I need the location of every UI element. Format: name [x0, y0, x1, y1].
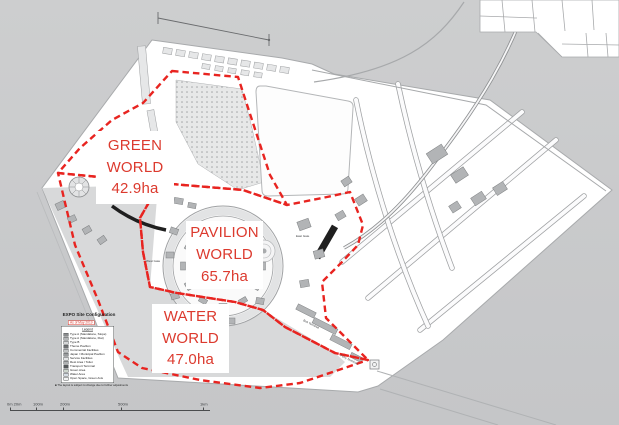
legend-item-label: Type A (Standalone, Slope): [70, 333, 106, 336]
legend-item-label: Green Area: [70, 369, 85, 372]
zone-name: WORLD: [186, 244, 263, 266]
scale-tick: [203, 408, 204, 412]
zone-label-water: WATER WORLD 47.0ha: [152, 304, 229, 373]
legend-swatch: [64, 337, 69, 341]
east-gate-label: East Gate: [296, 234, 310, 238]
legend-item-label: Commercial Facilities: [70, 349, 99, 352]
zone-area: 47.0ha: [152, 349, 229, 371]
building: [188, 202, 197, 208]
building: [202, 54, 212, 61]
building: [189, 52, 199, 59]
ferry-symbol: [370, 360, 379, 369]
zone-area: 65.7ha: [186, 266, 263, 288]
scale-tick: [63, 408, 64, 412]
legend-item: Open Space, Green Axis: [64, 377, 112, 381]
legend: EXPO Site Configuration As of May 2019 L…: [54, 312, 124, 387]
scale-label: 200m: [60, 402, 70, 407]
building: [163, 47, 173, 54]
expo-site-map: East GateWest GateBus TerminalFerry Term…: [0, 0, 619, 425]
legend-swatch: [64, 353, 69, 357]
legend-swatch: [64, 365, 69, 369]
building: [280, 66, 290, 73]
legend-swatch: [64, 377, 69, 381]
mainland-blocks: [480, 0, 619, 57]
zone-name: GREEN: [96, 135, 174, 157]
zone-label-green: GREEN WORLD 42.9ha: [96, 131, 174, 204]
legend-swatch: [64, 373, 69, 377]
building: [176, 49, 186, 56]
legend-footnote: ■ The layout is subject to change due to…: [55, 384, 124, 387]
legend-item-label: Service Facilities: [70, 357, 93, 360]
legend-item-label: Type A (Standalone, Flat): [70, 337, 104, 340]
legend-subtitle: As of May 2019: [68, 321, 95, 326]
dimension-line: [158, 12, 270, 46]
scale-bar-line: [10, 410, 210, 411]
zone-name: WATER: [152, 306, 229, 328]
scale-tick: [10, 408, 11, 412]
legend-item-label: Water Area: [70, 373, 85, 376]
west-gate-label: West Gate: [146, 259, 160, 263]
building: [256, 297, 265, 304]
building: [228, 68, 237, 74]
legend-swatch: [64, 333, 69, 337]
legend-swatch: [64, 369, 69, 373]
scale-bar: 0m 20m100m200m500m1km: [8, 402, 223, 413]
building: [267, 64, 277, 71]
building: [215, 66, 224, 72]
legend-item: Japan / Municipal Pavilion: [64, 353, 112, 357]
legend-item: Type A (Standalone, Slope): [64, 333, 112, 337]
zone-label-pavilion: PAVILION WORLD 65.7ha: [186, 221, 263, 289]
legend-item-label: Transport Terminal: [70, 365, 95, 368]
legend-swatch: [64, 345, 69, 349]
stadium: [69, 177, 89, 197]
building: [202, 63, 211, 69]
scale-tick: [121, 408, 122, 412]
building: [228, 58, 238, 65]
legend-panel: Legend Type A (Standalone, Slope)Type A …: [61, 326, 114, 383]
scale-tick: [36, 408, 37, 412]
building: [215, 56, 225, 63]
legend-swatch: [64, 361, 69, 365]
building: [174, 197, 184, 204]
legend-swatch: [64, 357, 69, 361]
legend-item-label: Type B: [70, 341, 79, 344]
legend-swatch: [64, 349, 69, 353]
zone-name: PAVILION: [186, 222, 263, 244]
building: [254, 72, 263, 78]
building: [254, 62, 264, 69]
legend-item-label: Japan / Municipal Pavilion: [70, 353, 105, 356]
building: [241, 70, 250, 76]
scale-label: 1km: [200, 402, 208, 407]
legend-heading: Legend: [64, 328, 112, 332]
legend-title: EXPO Site Configuration: [54, 312, 124, 317]
legend-item-label: Rest Area / Toilet: [70, 361, 93, 364]
zone-name: WORLD: [96, 157, 174, 179]
legend-swatch: [64, 341, 69, 345]
scale-label: 0m 20m: [7, 402, 21, 407]
building: [241, 60, 251, 67]
zone-name: WORLD: [152, 328, 229, 350]
scale-label: 100m: [33, 402, 43, 407]
legend-item-label: Theme Pavilion: [70, 345, 91, 348]
large-open-lot: [256, 86, 353, 196]
scale-label: 500m: [118, 402, 128, 407]
approach-road: [314, 2, 464, 82]
building: [166, 252, 174, 258]
building: [181, 262, 186, 270]
zone-area: 42.9ha: [96, 178, 174, 200]
breakwater-line: [377, 371, 556, 425]
legend-item-label: Open Space, Green Axis: [70, 377, 103, 380]
building: [299, 279, 309, 287]
